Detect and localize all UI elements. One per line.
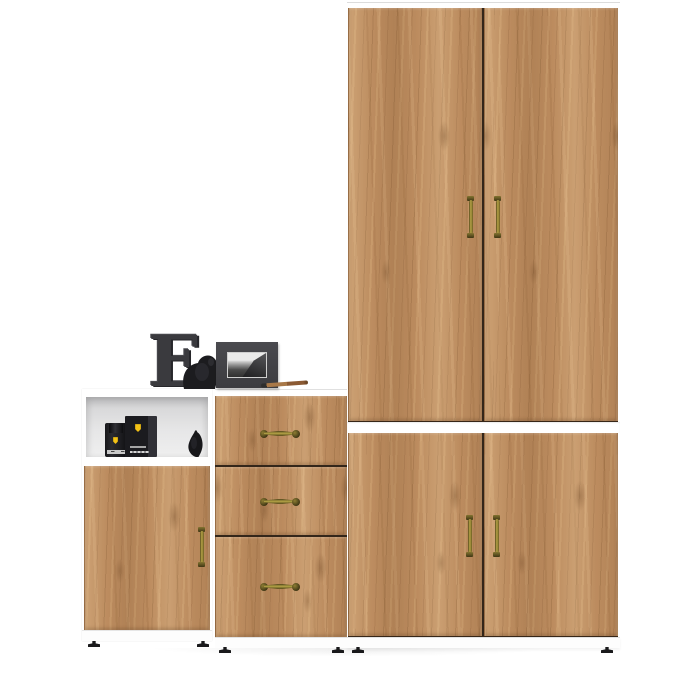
left-cabinet-base — [82, 630, 212, 641]
landscape-photo — [227, 352, 267, 378]
furniture-product-photo: E — [0, 0, 700, 676]
drawer-chest — [215, 389, 347, 648]
floor-shadow — [70, 648, 630, 660]
lower-cabinet-door-right — [484, 433, 618, 636]
wardrobe-door-left — [348, 8, 482, 421]
cabinet-foot — [197, 641, 209, 647]
lower-cabinet-base — [347, 637, 620, 648]
box-text-line — [130, 451, 149, 453]
wardrobe-door-right — [484, 8, 618, 421]
wardrobe-right-handle — [494, 196, 501, 238]
drawer-chest-base — [215, 637, 347, 648]
box-text-line — [130, 446, 146, 449]
perfume-bottle — [105, 423, 127, 457]
lower-cabinet-right-handle — [493, 515, 500, 557]
photo-frame — [216, 342, 278, 388]
left-cabinet-door — [84, 466, 210, 630]
left-cabinet-door-handle — [198, 527, 205, 567]
drawer-chest-top-panel — [215, 389, 347, 396]
bottle-cap — [109, 423, 123, 433]
lower-cabinet-door-left — [348, 433, 482, 636]
shield-emblem-icon — [113, 437, 118, 444]
cabinet-foot — [88, 641, 100, 647]
lower-cabinet-left-handle — [466, 515, 473, 557]
wardrobe-left-handle — [467, 196, 474, 238]
bottle-label — [107, 450, 125, 454]
right-unit — [347, 2, 620, 653]
drawer-3-handle — [260, 582, 300, 591]
wardrobe-doors — [348, 8, 618, 422]
lower-cabinet-doors — [348, 433, 618, 637]
drawer-2-handle — [260, 497, 300, 506]
left-cabinet — [82, 389, 212, 641]
drawer-1-handle — [260, 429, 300, 438]
bird-figurine — [186, 429, 206, 457]
perfume-box — [125, 416, 157, 457]
wardrobe-divider-band — [347, 422, 620, 433]
open-shelf-niche — [86, 397, 208, 457]
shield-emblem-icon — [135, 424, 141, 432]
